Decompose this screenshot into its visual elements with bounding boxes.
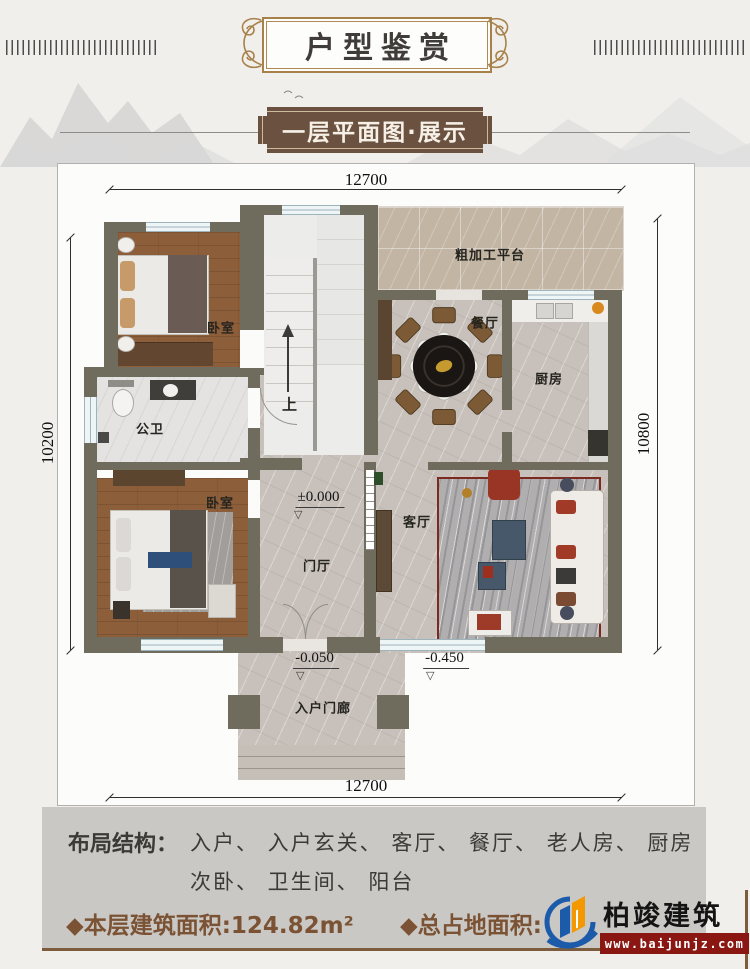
room-label-porch: 入户门廊 (295, 698, 351, 717)
stair-arrow-shaft (287, 336, 289, 392)
door-opening (240, 330, 264, 368)
stove (588, 430, 608, 456)
dim-line-right (657, 218, 658, 650)
page: 户型鉴赏 一层平面图·展示 12700 12700 10200 10800 (0, 0, 750, 969)
brand-url-band: www.baijunjz.com (600, 933, 749, 954)
kitchen-sink (555, 303, 573, 319)
dim-bottom-label: 12700 (345, 776, 388, 796)
wall (608, 290, 622, 653)
wall (104, 222, 118, 375)
dim-right-label: 10800 (634, 413, 654, 456)
wall (84, 367, 260, 377)
room-label-stair-up: 上 (282, 394, 298, 415)
platform-door (436, 290, 482, 300)
footer-rule-vertical (745, 890, 748, 969)
kitchen-sink (536, 303, 554, 319)
floor-area-text: ◆本层建筑面积:124.82m² (66, 906, 354, 940)
plant-pot (560, 606, 574, 620)
level-marker-yard: -0.450 (423, 650, 469, 669)
wall (485, 637, 608, 653)
side-pot (462, 488, 472, 498)
bed-blanket (168, 255, 207, 333)
wall (428, 462, 608, 470)
plant-pot (560, 478, 574, 492)
hall-screen-opening (366, 470, 374, 550)
porch-column (377, 695, 409, 729)
door-opening (248, 480, 260, 518)
stair-landing-steps (317, 215, 364, 365)
level-marker-icon: ▽ (296, 671, 304, 681)
wall (84, 462, 260, 470)
subtitle: 一层平面图·展示 (282, 113, 468, 147)
stair-divider (313, 258, 317, 451)
sofa-pillow (556, 592, 576, 606)
total-area-label: ◆总占地面积: (400, 906, 542, 940)
toilet-bowl (112, 389, 134, 417)
dim-top-label: 12700 (345, 170, 388, 190)
page-title-inner-border: 户型鉴赏 (266, 21, 488, 69)
room-label-bathroom: 公卫 (136, 419, 164, 438)
room-label-platform: 粗加工平台 (455, 245, 525, 264)
nightstand (117, 237, 135, 253)
title-flourish-right-icon (486, 11, 522, 75)
right-hatch-ornament (594, 40, 744, 55)
porch-column (228, 695, 260, 729)
wall (502, 290, 512, 410)
window (282, 205, 340, 215)
nightstand (113, 601, 130, 619)
pillow (116, 518, 131, 552)
sofa-throw (556, 568, 576, 584)
floor-lamp (98, 432, 109, 443)
table-pot (483, 566, 493, 578)
coffee-table (492, 520, 526, 560)
window (141, 639, 223, 651)
window (528, 290, 594, 300)
window (84, 397, 97, 443)
left-hatch-ornament (6, 40, 156, 55)
stair-up-arrow-icon (282, 324, 294, 337)
level-marker-icon: ▽ (294, 510, 302, 520)
level-marker-ground: ±0.000 (296, 489, 345, 508)
stair-side-cabinet (378, 300, 392, 380)
subtitle-left-rule (60, 132, 258, 133)
subtitle-inner-border: 一层平面图·展示 (262, 111, 488, 149)
pillow (120, 298, 135, 328)
nightstand (117, 336, 135, 352)
armchair (488, 468, 520, 500)
room-label-bedroom-bottom: 卧室 (206, 493, 234, 512)
brand-logo-icon (540, 890, 600, 954)
fruit-bowl (592, 302, 604, 314)
pillow (116, 557, 131, 591)
page-title: 户型鉴赏 (297, 23, 457, 67)
dim-line-bottom (110, 797, 622, 798)
level-marker-icon: ▽ (426, 671, 434, 681)
room-label-kitchen: 厨房 (535, 369, 563, 388)
wall (364, 205, 378, 455)
sofa-pillow (556, 500, 576, 514)
sofa-pillow (556, 545, 576, 559)
brand-url: www.baijunjz.com (605, 937, 745, 951)
bench-cushion (477, 614, 501, 630)
wall (240, 458, 302, 470)
level-marker-porch: -0.050 (293, 650, 339, 669)
bed-runner (148, 552, 192, 568)
room-label-dining: 餐厅 (471, 313, 499, 332)
title-flourish-left-icon (228, 11, 264, 75)
subtitle-plaque: 一层平面图·展示 (258, 107, 492, 153)
console-cabinet (376, 510, 392, 592)
room-label-foyer: 门厅 (303, 556, 331, 575)
toilet (108, 380, 134, 387)
dim-line-left (70, 237, 71, 650)
room-label-bedroom-top: 卧室 (207, 318, 235, 337)
layout-line1: 入户、 入户玄关、 客厅、 餐厅、 老人房、 厨房 (190, 827, 693, 857)
room-label-living: 客厅 (403, 512, 431, 531)
subtitle-right-rule (492, 132, 690, 133)
wardrobe (113, 470, 185, 486)
page-title-box: 户型鉴赏 (262, 17, 492, 73)
brand-name: 柏竣建筑 (603, 894, 723, 933)
sink (163, 384, 178, 397)
dim-left-label: 10200 (38, 422, 58, 465)
layout-label: 布局结构： (68, 826, 178, 858)
layout-line2: 次卧、 卫生间、 阳台 (190, 866, 414, 896)
window (146, 222, 210, 232)
desk (208, 584, 236, 618)
door-opening (248, 388, 260, 428)
pillow (120, 261, 135, 291)
porch-steps (238, 745, 405, 780)
wall (238, 637, 283, 653)
